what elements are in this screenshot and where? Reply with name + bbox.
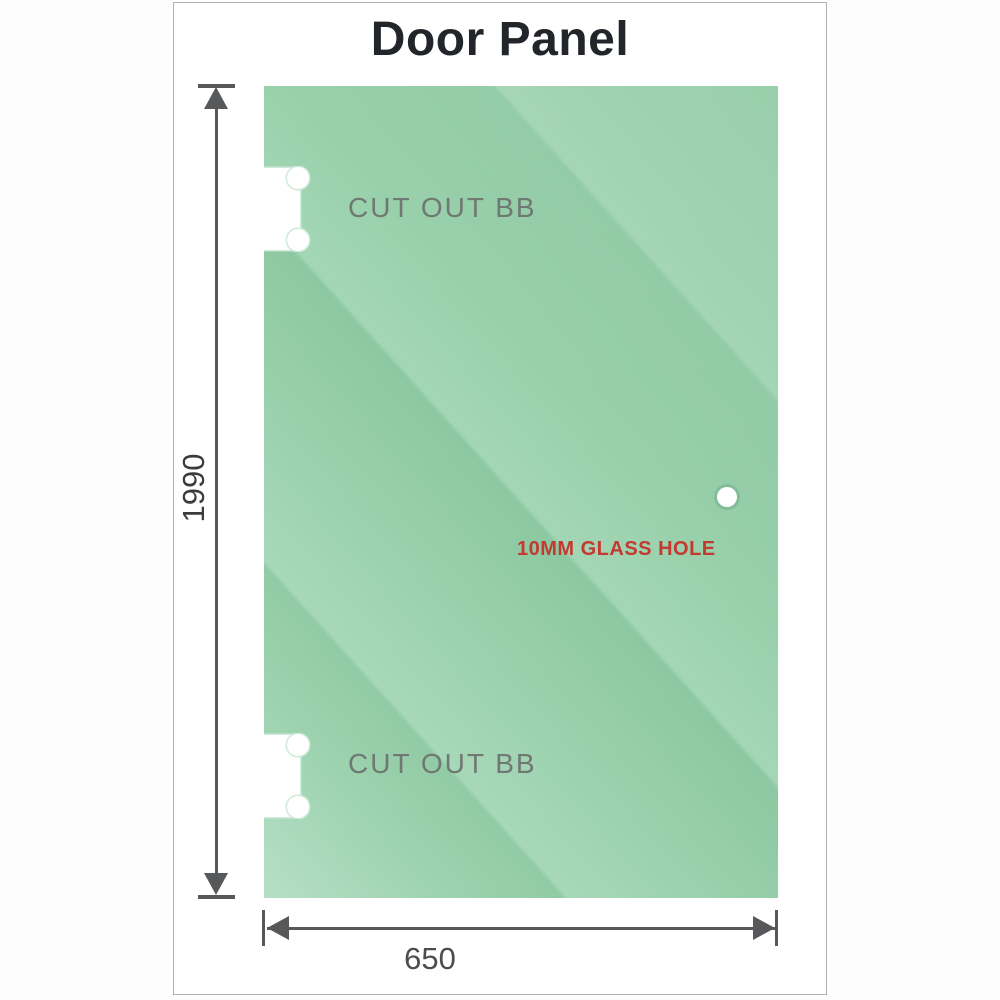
- arrowhead-down-icon: [204, 873, 228, 895]
- door-panel-diagram: Door Panel CUT OUT BB CUT OUT BB 10MM GL…: [0, 0, 1000, 1000]
- dimension-tick-right: [775, 910, 778, 946]
- height-dimension-value: 1990: [176, 438, 210, 538]
- diagram-title: Door Panel: [173, 12, 827, 67]
- hinge-cutout-bottom-icon: [264, 733, 312, 819]
- hinge-cutout-top-icon: [264, 166, 312, 252]
- dimension-tick-left: [262, 910, 265, 946]
- width-dimension-line: [267, 927, 776, 930]
- height-dimension-line: [215, 106, 218, 876]
- cutout-top-label: CUT OUT BB: [348, 194, 537, 222]
- cutout-bottom-label: CUT OUT BB: [348, 750, 537, 778]
- width-dimension-value: 650: [385, 941, 475, 977]
- dimension-cap-bottom: [198, 895, 235, 899]
- glass-hole-icon: [717, 487, 737, 507]
- arrowhead-right-icon: [753, 916, 775, 940]
- glass-hole-label: 10MM GLASS HOLE: [517, 538, 716, 561]
